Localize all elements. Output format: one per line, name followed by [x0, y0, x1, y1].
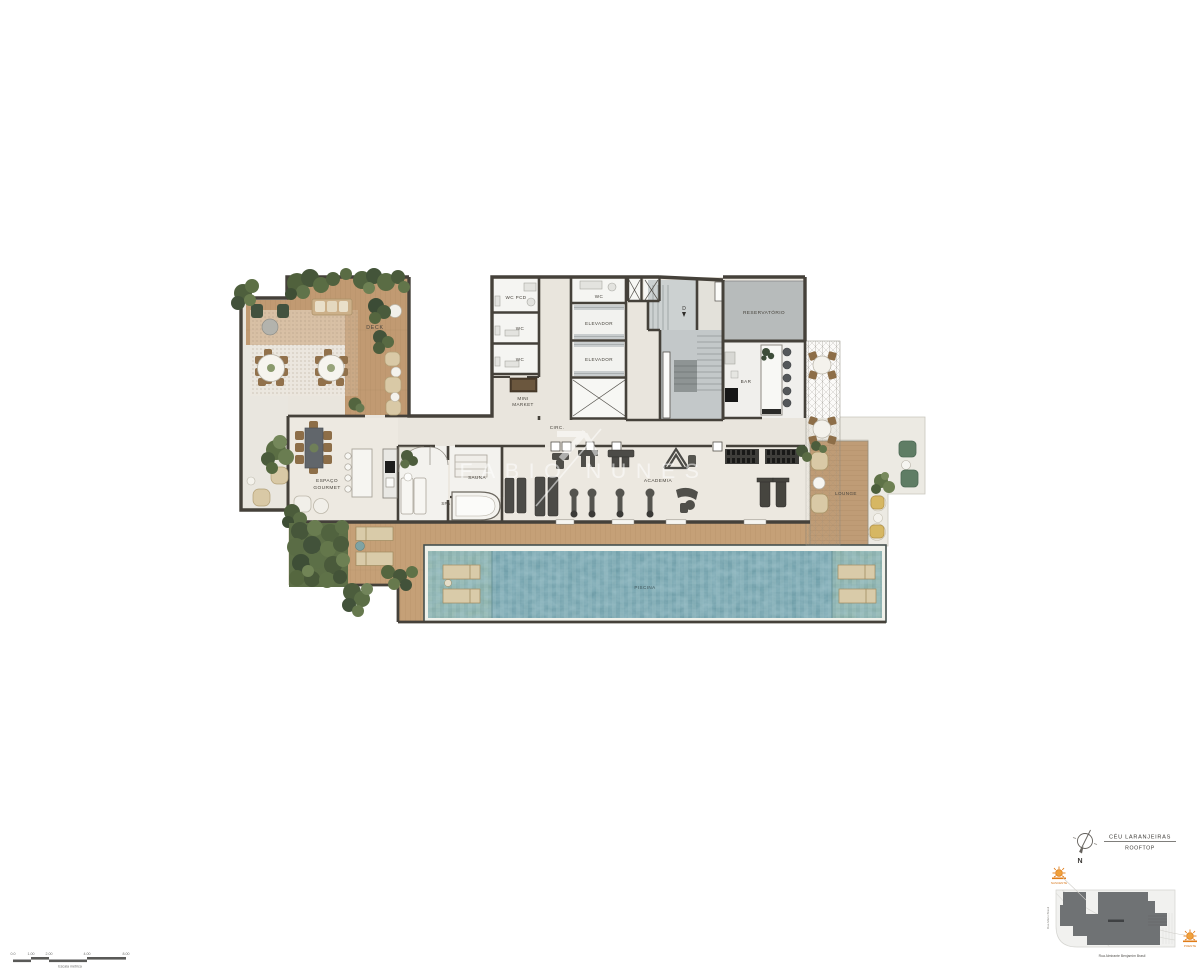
svg-text:Rua Mário Brasil: Rua Mário Brasil: [1046, 907, 1050, 930]
svg-text:WC: WC: [595, 294, 604, 299]
svg-text:8.00: 8.00: [123, 952, 130, 956]
svg-text:RESERVATÓRIO: RESERVATÓRIO: [743, 309, 785, 316]
svg-text:CIRC.: CIRC.: [550, 425, 565, 430]
svg-text:WC: WC: [516, 326, 525, 331]
svg-text:LOUNGE: LOUNGE: [835, 491, 857, 496]
svg-text:CÉU LARANJEIRAS: CÉU LARANJEIRAS: [1109, 834, 1171, 841]
svg-text:2.00: 2.00: [46, 952, 53, 956]
svg-text:BAR: BAR: [741, 379, 752, 384]
svg-text:0.0: 0.0: [11, 952, 16, 956]
svg-text:FABIO NUNES: FABIO NUNES: [459, 459, 708, 483]
svg-text:ROOFTOP: ROOFTOP: [1125, 846, 1155, 852]
svg-text:WC PCD: WC PCD: [505, 295, 526, 300]
svg-text:PISCINA: PISCINA: [634, 585, 656, 590]
svg-text:WC: WC: [516, 357, 525, 362]
svg-text:NASCENTE: NASCENTE: [1051, 881, 1067, 885]
svg-text:D: D: [682, 306, 686, 312]
svg-text:4.00: 4.00: [84, 952, 91, 956]
svg-text:N: N: [1077, 858, 1082, 865]
svg-text:MINI: MINI: [517, 396, 528, 401]
svg-text:Escala métrica: Escala métrica: [58, 965, 82, 969]
svg-text:Rua Almirante Benjamim Brasil: Rua Almirante Benjamim Brasil: [1099, 954, 1146, 958]
svg-text:ESPAÇO: ESPAÇO: [316, 478, 338, 484]
svg-text:ELEVADOR: ELEVADOR: [585, 321, 613, 326]
svg-text:POENTE: POENTE: [1184, 944, 1196, 948]
svg-text:DECK: DECK: [366, 325, 384, 331]
svg-text:ELEVADOR: ELEVADOR: [585, 357, 613, 362]
svg-text:SPA: SPA: [441, 501, 450, 506]
svg-text:GOURMET: GOURMET: [313, 485, 340, 491]
svg-text:MARKET: MARKET: [512, 402, 534, 407]
svg-text:1.00: 1.00: [28, 952, 35, 956]
